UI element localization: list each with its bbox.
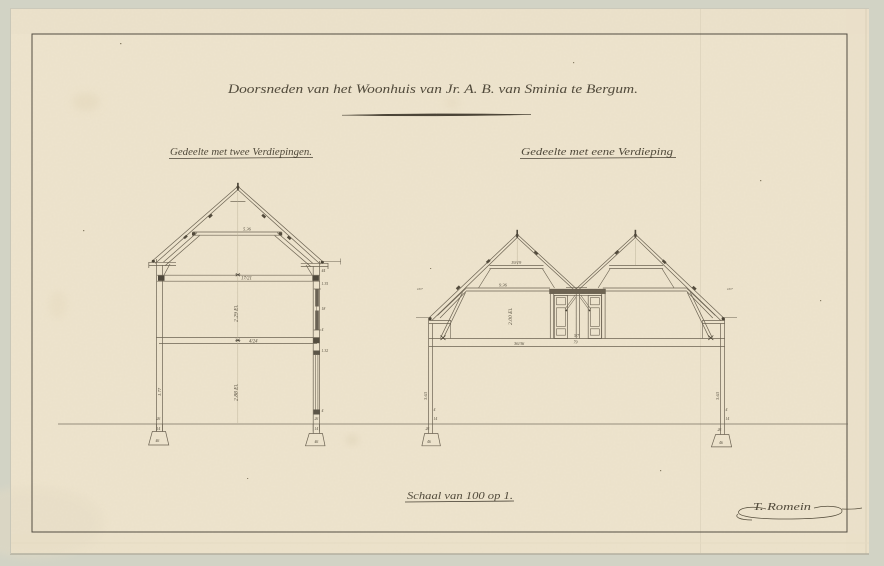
svg-text:2.88 El.: 2.88 El. xyxy=(234,383,240,401)
svg-text:44: 44 xyxy=(322,269,326,273)
svg-text:1.32: 1.32 xyxy=(322,349,329,353)
svg-text:2.29 El.: 2.29 El. xyxy=(234,304,240,322)
svg-text:14: 14 xyxy=(157,427,161,431)
svg-text:14: 14 xyxy=(726,417,730,421)
svg-text:26: 26 xyxy=(718,428,722,432)
svg-text:14: 14 xyxy=(434,417,438,421)
svg-text:5.36: 5.36 xyxy=(243,227,252,232)
svg-text:79: 79 xyxy=(574,340,578,345)
svg-text:Gedeelte met twee Verdiepingen: Gedeelte met twee Verdiepingen. xyxy=(170,147,312,158)
svg-text:4: 4 xyxy=(322,409,324,413)
svg-text:17/21: 17/21 xyxy=(241,277,252,282)
svg-text:2.00 El.: 2.00 El. xyxy=(508,307,514,325)
svg-text:3.63: 3.63 xyxy=(423,391,428,400)
svg-text:46: 46 xyxy=(315,440,319,444)
svg-text:26: 26 xyxy=(426,427,430,431)
svg-text:26: 26 xyxy=(315,417,319,421)
svg-text:4/24: 4/24 xyxy=(249,340,258,345)
svg-text:10/7: 10/7 xyxy=(417,287,423,291)
svg-text:1.35: 1.35 xyxy=(322,282,329,286)
svg-text:4: 4 xyxy=(322,328,324,332)
svg-text:Schaal van 100 op 1.: Schaal van 100 op 1. xyxy=(407,491,513,502)
svg-text:T. Romein: T. Romein xyxy=(753,502,811,513)
svg-text:46: 46 xyxy=(427,440,431,444)
svg-text:46: 46 xyxy=(156,439,160,443)
svg-text:10/7: 10/7 xyxy=(727,287,733,291)
svg-text:26: 26 xyxy=(157,417,161,421)
svg-text:46: 46 xyxy=(719,441,723,445)
svg-text:18: 18 xyxy=(322,307,326,311)
svg-text:Gedeelte met eene Verdieping: Gedeelte met eene Verdieping xyxy=(521,147,673,158)
svg-text:9.36: 9.36 xyxy=(499,283,508,288)
svg-text:4: 4 xyxy=(726,408,728,412)
svg-text:4: 4 xyxy=(434,408,436,412)
svg-text:3.63: 3.63 xyxy=(715,391,720,400)
svg-text:19/19: 19/19 xyxy=(511,260,522,265)
svg-text:36/36: 36/36 xyxy=(514,341,525,346)
svg-text:14: 14 xyxy=(315,427,319,431)
svg-text:1.77: 1.77 xyxy=(157,387,162,396)
svg-text:Doorsneden van het Woonhuis va: Doorsneden van het Woonhuis van Jr. A. B… xyxy=(227,81,638,96)
